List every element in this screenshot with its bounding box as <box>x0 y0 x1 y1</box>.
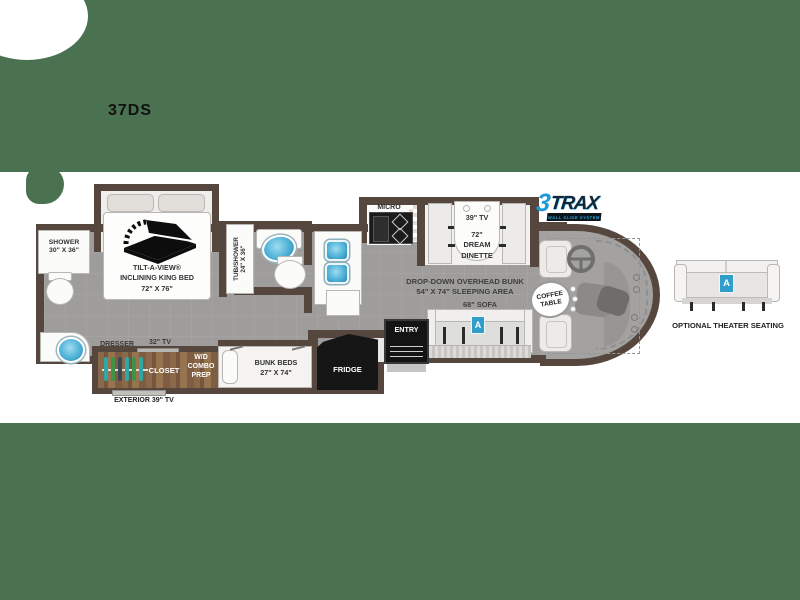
logo-trax: TRAX <box>549 193 599 215</box>
seat-seam <box>546 246 567 273</box>
bath2-wall-right <box>304 221 312 265</box>
bed-slide-wall-right <box>212 184 219 252</box>
cup-holder <box>570 306 576 312</box>
range-icon <box>369 212 413 244</box>
bed-label3: 72" X 76" <box>103 285 211 293</box>
overhead-bunk-label1: DROP-DOWN OVERHEAD BUNK <box>390 278 540 287</box>
theater-arm-right <box>767 264 780 302</box>
kitchen-wall-stub <box>304 287 312 313</box>
entry-label: ENTRY <box>384 326 429 334</box>
sofa-leg <box>443 327 446 344</box>
model-label: 37DS <box>108 102 152 120</box>
bed-label2: INCLINING KING BED <box>103 274 211 282</box>
bed-pillow-left <box>107 194 154 212</box>
theater-badge: A <box>719 274 734 293</box>
entry-step-lines <box>390 342 423 360</box>
dinette-wall-inner-left <box>417 200 425 266</box>
sofa-skirt <box>429 345 531 358</box>
tub-line2: 24" X 36" <box>240 226 247 292</box>
kitchen-lower-cabinet <box>326 290 360 316</box>
dinette-speaker-right <box>484 205 491 212</box>
dinette-label1: 72" <box>452 231 502 239</box>
steering-wheel-icon <box>565 243 597 275</box>
corner-wedge <box>0 0 88 60</box>
dinette-speaker-left <box>463 205 470 212</box>
sofa-leg <box>500 327 503 344</box>
passenger-seat <box>539 314 572 352</box>
sofa-leg <box>516 327 519 344</box>
bunk-label1: BUNK BEDS <box>240 359 312 367</box>
shower-line2: 30" X 36" <box>38 247 90 255</box>
tub-line1: TUB/SHOWER <box>233 226 240 292</box>
theater-back-split <box>725 261 727 272</box>
theater-skirt <box>682 298 772 304</box>
hanger-icon <box>125 357 129 381</box>
bunk-pillow <box>222 350 238 384</box>
sofa-leg <box>462 327 465 344</box>
fridge-label: FRIDGE <box>317 366 378 375</box>
theater-leg <box>742 302 745 311</box>
tub-shower: TUB/SHOWER 24" X 36" <box>226 224 254 294</box>
dinette-label2: DREAM <box>446 241 508 250</box>
bed-slide-wall-left <box>94 184 101 252</box>
sink1-icon <box>57 337 85 363</box>
hanger-icon <box>104 357 108 381</box>
table-leg <box>499 226 506 229</box>
hanger-icon <box>132 357 136 381</box>
dinette-label3: DINETTE <box>446 252 508 261</box>
tv32-label: 32" TV <box>140 339 180 347</box>
kitchen-sink-top <box>325 240 349 261</box>
bed-label1: TILT-A-VIEW® <box>103 264 211 272</box>
toilet2-icon <box>274 260 306 289</box>
theater-leg <box>690 302 693 311</box>
tub-shower-label: TUB/SHOWER 24" X 36" <box>233 226 247 292</box>
hanger-icon <box>118 357 122 381</box>
kitchen-sink-bottom <box>325 263 349 284</box>
shower-label: SHOWER 30" X 36" <box>38 239 90 255</box>
bed-pillow-right <box>158 194 205 212</box>
theater-leg <box>762 302 765 311</box>
floorplan-page: 37DS SHOWER 30" X 36" <box>0 0 800 600</box>
burner-icon-2 <box>392 228 409 245</box>
wd-label1: W/D <box>180 354 222 362</box>
bunk-label2: 27" X 74" <box>240 369 312 377</box>
theater-label: OPTIONAL THEATER SEATING <box>652 322 800 331</box>
theater-leg <box>712 302 715 311</box>
logo-banner: WALL SLIDE SYSTEM <box>547 213 602 221</box>
dash-knob <box>633 286 640 293</box>
logo-tagline: WALL SLIDE SYSTEM <box>548 215 600 220</box>
sofa-badge: A <box>471 316 485 334</box>
fridge-icon <box>317 334 378 390</box>
cup-holder <box>570 286 576 292</box>
exterior-tv-icon <box>112 390 166 396</box>
wd-label2: COMBO <box>180 363 222 371</box>
dash-knob <box>633 274 640 281</box>
bed-slide-wall-top <box>94 184 219 191</box>
entry-landing <box>387 364 426 372</box>
cup-holder <box>572 296 578 302</box>
micro-label: MICRO <box>367 204 411 212</box>
tilt-bed-graphic <box>116 216 200 264</box>
tv39-label: 39" TV <box>452 214 502 222</box>
range-panel <box>373 216 389 242</box>
toilet1-icon <box>46 278 74 305</box>
dash-knob <box>631 326 638 333</box>
shower-line1: SHOWER <box>38 239 90 247</box>
overhead-bunk-label2: 54" X 74" SLEEPING AREA <box>390 288 540 297</box>
hanger-icon <box>111 357 115 381</box>
seat-seam <box>546 321 567 348</box>
3trax-logo: 3 TRAX WALL SLIDE SYSTEM <box>534 192 611 224</box>
exterior-tv-label: EXTERIOR 39" TV <box>104 397 184 405</box>
dresser-label: DRESSER <box>95 341 139 349</box>
wd-label3: PREP <box>180 372 222 380</box>
theater-seating: A <box>674 260 780 312</box>
dash-knob <box>631 314 638 321</box>
